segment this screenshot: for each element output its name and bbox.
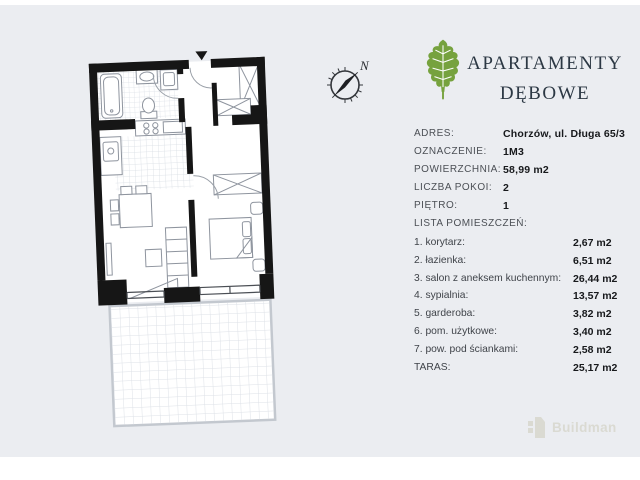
room-list-header: LISTA POMIESZCZEŃ: — [414, 218, 527, 229]
room-name: 1. korytarz: — [414, 237, 465, 248]
developer-brand: Buildman — [528, 417, 617, 438]
logo-title-line2: DĘBOWE — [462, 83, 628, 105]
room-area: 3,40 m2 — [573, 326, 612, 338]
detail-value: 1M3 — [503, 146, 524, 158]
room-name: 2. łazienka: — [414, 255, 466, 266]
buildman-logo-icon — [528, 417, 545, 438]
room-row-taras: TARAS: 25,17 m2 — [414, 362, 628, 380]
logo-title-line1: APARTAMENTY — [462, 53, 628, 75]
room-row-lazienka: 2. łazienka: 6,51 m2 — [414, 255, 628, 273]
room-name: 5. garderoba: — [414, 308, 475, 319]
room-name: 6. pom. użytkowe: — [414, 326, 497, 337]
room-area: 3,82 m2 — [573, 308, 612, 320]
room-area: 2,67 m2 — [573, 237, 612, 249]
detail-label: PIĘTRO: — [414, 200, 458, 211]
entrance-marker-icon — [195, 51, 207, 60]
room-name: TARAS: — [414, 362, 450, 373]
room-row-salon: 3. salon z aneksem kuchennym: 26,44 m2 — [414, 273, 628, 291]
room-row-garderoba: 5. garderoba: 3,82 m2 — [414, 308, 628, 326]
compass-north-label: N — [359, 58, 370, 73]
room-name: 4. sypialnia: — [414, 290, 468, 301]
detail-row-oznaczenie: OZNACZENIE: 1M3 — [414, 146, 628, 164]
room-list: 1. korytarz: 2,67 m2 2. łazienka: 6,51 m… — [414, 237, 628, 379]
compass-icon: N — [318, 52, 380, 114]
detail-row-pietro: PIĘTRO: 1 — [414, 200, 628, 218]
room-row-pom-uzytkowe: 6. pom. użytkowe: 3,40 m2 — [414, 326, 628, 344]
detail-row-adres: ADRES: Chorzów, ul. Długa 65/3 — [414, 128, 628, 146]
room-area: 6,51 m2 — [573, 255, 612, 267]
room-row-pow-pod-sciankami: 7. pow. pod ściankami: 2,58 m2 — [414, 344, 628, 362]
detail-label: ADRES: — [414, 128, 454, 139]
detail-row-liczba-pokoi: LICZBA POKOI: 2 — [414, 182, 628, 200]
detail-value: 1 — [503, 200, 509, 212]
bathroom — [97, 68, 179, 120]
room-name: 7. pow. pod ściankami: — [414, 344, 518, 355]
details-table: ADRES: Chorzów, ul. Długa 65/3 OZNACZENI… — [414, 128, 628, 218]
room-row-sypialnia: 4. sypialnia: 13,57 m2 — [414, 290, 628, 308]
detail-row-powierzchnia: POWIERZCHNIA: 58,99 m2 — [414, 164, 628, 182]
room-area: 25,17 m2 — [573, 362, 617, 374]
terrace — [110, 300, 276, 426]
detail-label: LICZBA POKOI: — [414, 182, 492, 193]
room-name: 3. salon z aneksem kuchennym: — [414, 273, 561, 284]
detail-label: POWIERZCHNIA: — [414, 164, 501, 175]
room-area: 26,44 m2 — [573, 273, 617, 285]
room-area: 13,57 m2 — [573, 290, 617, 302]
brand-name: Buildman — [552, 420, 617, 435]
detail-value: 58,99 m2 — [503, 164, 549, 176]
detail-value: 2 — [503, 182, 509, 194]
floor-plan — [78, 42, 298, 442]
oak-leaf-icon — [424, 32, 462, 108]
detail-label: OZNACZENIE: — [414, 146, 487, 157]
detail-value: Chorzów, ul. Długa 65/3 — [503, 128, 625, 140]
floor-plan-card: N APARTAMENTY DĘBOWE ADRES: Chorzów, ul.… — [0, 0, 640, 480]
room-area: 2,58 m2 — [573, 344, 612, 356]
room-row-korytarz: 1. korytarz: 2,67 m2 — [414, 237, 628, 255]
